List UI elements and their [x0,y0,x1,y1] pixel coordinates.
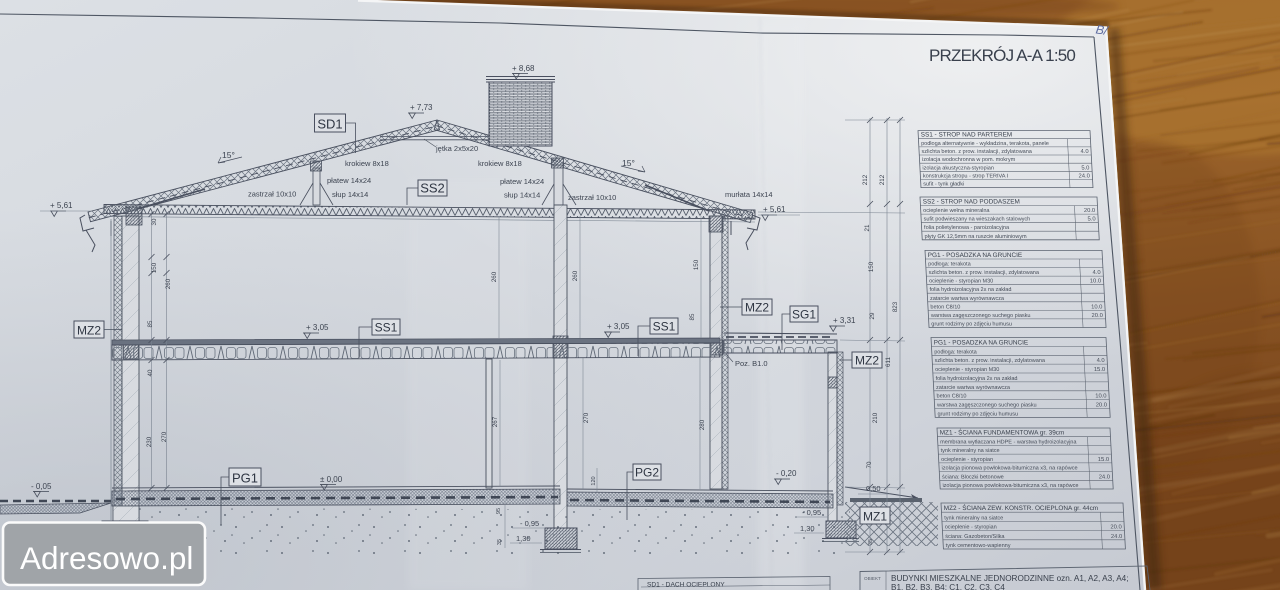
svg-text:MZ2: MZ2 [855,354,879,368]
svg-text:270: 270 [161,431,168,442]
svg-text:beton C8/10: beton C8/10 [936,394,966,400]
svg-text:konstrukcja stropu - strop TER: konstrukcja stropu - strop TERIVA I [923,174,1009,180]
svg-text:MZ1: MZ1 [863,510,887,524]
svg-text:70: 70 [866,461,873,468]
svg-text:267: 267 [492,416,499,427]
svg-text:PG2: PG2 [635,466,659,480]
svg-text:OBIEKT: OBIEKT [864,576,881,581]
svg-text:PG1 - POSADZKA NA GRUNCIE: PG1 - POSADZKA NA GRUNCIE [934,339,1029,346]
svg-text:10.0: 10.0 [1090,279,1102,285]
svg-text:krokiew 8x18: krokiew 8x18 [345,159,389,168]
svg-text:podłoga: terakota: podłoga: terakota [928,262,972,268]
svg-text:SS1: SS1 [653,320,676,334]
svg-text:24.0: 24.0 [1099,474,1111,480]
svg-text:beton C8/10: beton C8/10 [930,304,960,310]
svg-text:21: 21 [864,224,871,231]
svg-text:0,50: 0,50 [866,484,881,493]
svg-text:SG1: SG1 [792,308,816,322]
svg-text:823: 823 [892,301,899,312]
svg-text:warstwa zagęszczonego suchego: warstwa zagęszczonego suchego piasku [930,313,1031,319]
svg-text:krokiew 8x18: krokiew 8x18 [478,159,522,168]
svg-text:jętka 2x5x20: jętka 2x5x20 [435,144,478,153]
svg-text:ocieplenie - styropian: ocieplenie - styropian [945,525,997,531]
svg-text:15.0: 15.0 [1094,367,1106,373]
svg-text:20.0: 20.0 [1110,525,1122,531]
svg-text:sufit - tynk gładki: sufit - tynk gładki [923,182,964,188]
svg-text:SD1 - DACH OCIEPLONY: SD1 - DACH OCIEPLONY [647,582,725,589]
svg-text:folia polietylenowa - paroizol: folia polietylenowa - paroizolacyjna [924,225,1010,231]
svg-text:płatew 14x24: płatew 14x24 [327,176,371,185]
svg-text:150: 150 [868,261,875,272]
svg-text:tynk mineralny na siatce: tynk mineralny na siatce [944,515,1003,521]
svg-text:- 0,95: - 0,95 [802,508,821,517]
svg-text:MZ2: MZ2 [77,324,101,338]
svg-text:zastrzał 10x10: zastrzał 10x10 [248,190,296,199]
svg-text:podłoga alternatywnie - wykład: podłoga alternatywnie - wykładzina, tera… [921,141,1049,147]
svg-text:izolacja akustyczna-styropian: izolacja akustyczna-styropian [922,165,994,171]
svg-text:85: 85 [147,320,154,327]
svg-text:15.0: 15.0 [1098,457,1110,463]
svg-text:ściana: Bloczki betonowe: ściana: Bloczki betonowe [942,474,1004,480]
svg-text:folia hydroizolacyjna 2x na za: folia hydroizolacyjna 2x na zakład [929,287,1011,293]
svg-text:izolacja wodochronna w pom. mo: izolacja wodochronna w pom. mokrym [922,157,1016,163]
svg-text:murłata 14x14: murłata 14x14 [725,190,773,199]
svg-text:120: 120 [591,476,597,485]
svg-text:BUDYNKI MIESZKALNE JEDNORODZIN: BUDYNKI MIESZKALNE JEDNORODZINNE ozn. A1… [891,574,1129,583]
svg-text:35: 35 [497,539,503,545]
svg-text:+ 5,61: + 5,61 [763,205,786,214]
svg-text:20.0: 20.0 [1091,313,1103,319]
svg-text:izolacja pionowa powłokowa-bit: izolacja pionowa powłokowa-bitumiczna x3… [941,466,1077,472]
svg-text:tynk mineralny na siatce: tynk mineralny na siatce [941,448,1000,454]
svg-text:230: 230 [146,436,153,447]
svg-text:4.0: 4.0 [1097,358,1105,364]
svg-text:podłoga: terakota: podłoga: terakota [934,349,978,355]
svg-text:ocieplenie - styropian M30: ocieplenie - styropian M30 [935,367,999,373]
svg-text:SS1: SS1 [375,321,398,335]
svg-text:płyty GK 12,5mm na ruszcie alu: płyty GK 12,5mm na ruszcie aluminiowym [924,234,1027,240]
svg-text:Poz. B1.0: Poz. B1.0 [735,359,768,368]
svg-text:10.0: 10.0 [1091,304,1103,310]
svg-text:35: 35 [868,539,874,545]
svg-text:150: 150 [693,259,700,270]
svg-text:sufit podwieszany na wieszakac: sufit podwieszany na wieszakach stalowyc… [924,217,1031,223]
svg-text:MZ1 - ŚCIANA FUNDAMENTOWA gr.: MZ1 - ŚCIANA FUNDAMENTOWA gr. 39cm [939,428,1064,437]
svg-text:płatew 14x24: płatew 14x24 [500,177,544,186]
svg-text:+ 3,05: + 3,05 [306,323,329,332]
svg-text:izolacja pionowa powłokowa-bit: izolacja pionowa powłokowa-bitumiczna x3… [942,483,1078,489]
svg-text:słup 14x14: słup 14x14 [504,191,540,200]
svg-text:29: 29 [869,312,876,319]
svg-text:słup 14x14: słup 14x14 [332,190,368,199]
svg-text:1,30: 1,30 [800,524,815,533]
svg-text:grunt rodzimy po zdjęciu humus: grunt rodzimy po zdjęciu humusu [937,411,1018,417]
svg-text:212: 212 [862,174,869,185]
svg-text:MZ2: MZ2 [745,301,769,315]
svg-text:40: 40 [147,369,154,376]
svg-text:4.0: 4.0 [1080,149,1088,155]
svg-text:+ 7,73: + 7,73 [410,103,433,112]
svg-text:ściana: Gazobeton/Silka: ściana: Gazobeton/Silka [945,534,1006,540]
svg-text:SS2 - STROP NAD PODDASZEM: SS2 - STROP NAD PODDASZEM [923,199,1020,206]
svg-text:1,30: 1,30 [516,534,531,543]
svg-text:260: 260 [491,271,498,282]
svg-text:10.0: 10.0 [1095,394,1107,400]
svg-text:270: 270 [583,412,590,423]
svg-text:95: 95 [496,508,502,514]
svg-text:611: 611 [885,357,892,367]
svg-text:± 0,00: ± 0,00 [320,475,343,484]
svg-text:+ 5,61: + 5,61 [50,201,73,210]
svg-text:ocieplenie - styropian: ocieplenie - styropian [941,457,993,463]
svg-text:ocieplenie - styropian M30: ocieplenie - styropian M30 [929,279,993,285]
svg-text:PG1 - POSADZKA NA GRUNCIE: PG1 - POSADZKA NA GRUNCIE [928,252,1023,259]
svg-text:+ 8,68: + 8,68 [512,64,535,73]
svg-text:5.0: 5.0 [1081,165,1089,171]
svg-text:SD1: SD1 [317,117,342,132]
svg-text:zatarcie wartwa wyrównawcza: zatarcie wartwa wyrównawcza [930,296,1005,302]
svg-text:24.0: 24.0 [1111,534,1123,540]
svg-text:PG1: PG1 [232,471,258,486]
svg-text:- 0,05: - 0,05 [31,482,52,491]
svg-text:SS2: SS2 [420,181,445,196]
svg-text:folia hydroizolacyjna 2x na za: folia hydroizolacyjna 2x na zakład [936,376,1018,382]
svg-text:+ 3,31: + 3,31 [833,316,856,325]
svg-text:PRZEKRÓJ A-A 1:50: PRZEKRÓJ A-A 1:50 [929,46,1075,65]
svg-text:szlichta beton. z prow. instal: szlichta beton. z prow. instalacji, zdyl… [921,149,1033,155]
svg-text:280: 280 [699,419,706,430]
svg-text:150: 150 [151,262,158,273]
svg-text:SS1 - STROP NAD PARTEREM: SS1 - STROP NAD PARTEREM [921,132,1013,139]
svg-text:212: 212 [879,174,886,185]
svg-text:30: 30 [151,218,158,225]
svg-text:ocieplenie wełna mineralna: ocieplenie wełna mineralna [923,208,991,214]
svg-text:5.0: 5.0 [1087,217,1095,223]
svg-text:zatarcie wartwa wyrównawcza: zatarcie wartwa wyrównawcza [936,385,1011,391]
svg-text:grunt rodzimy po zdjęciu humus: grunt rodzimy po zdjęciu humusu [931,322,1012,328]
svg-text:- 0,20: - 0,20 [776,469,797,478]
svg-text:membrana wytłaczana HDPE - war: membrana wytłaczana HDPE - warstwa hydro… [940,439,1077,445]
svg-text:Adresowo.pl: Adresowo.pl [20,540,193,576]
svg-text:20.0: 20.0 [1096,403,1108,409]
svg-text:warstwa zagęszczonego suchego: warstwa zagęszczonego suchego piasku [936,403,1037,409]
svg-text:tynk cementowo-wapienny: tynk cementowo-wapienny [946,543,1011,549]
svg-text:15°: 15° [222,150,235,160]
svg-text:260: 260 [572,270,579,281]
svg-text:85: 85 [689,313,696,320]
svg-text:B1, B2, B3, B4; C1, C2, C3, C4: B1, B2, B3, B4; C1, C2, C3, C4 [891,583,1005,590]
svg-text:+ 3,05: + 3,05 [607,322,630,331]
svg-text:zastrzał 10x10: zastrzał 10x10 [568,193,616,202]
svg-text:MZ2 - ŚCIANA ZEW. KONSTR. OCIE: MZ2 - ŚCIANA ZEW. KONSTR. OCIEPLONA gr. … [944,503,1099,512]
svg-text:24.0: 24.0 [1078,174,1090,180]
svg-text:4.0: 4.0 [1092,270,1100,276]
svg-text:szlichta beton. z prow. instal: szlichta beton. z prow. instalacji, zdyl… [935,358,1047,364]
svg-text:20.0: 20.0 [1084,208,1096,214]
svg-text:210: 210 [872,412,879,423]
svg-text:260: 260 [165,278,172,289]
svg-text:szlichta beton. z prow. instal: szlichta beton. z prow. instalacji, zdyl… [929,270,1041,276]
svg-text:- 0,95: - 0,95 [520,519,539,528]
